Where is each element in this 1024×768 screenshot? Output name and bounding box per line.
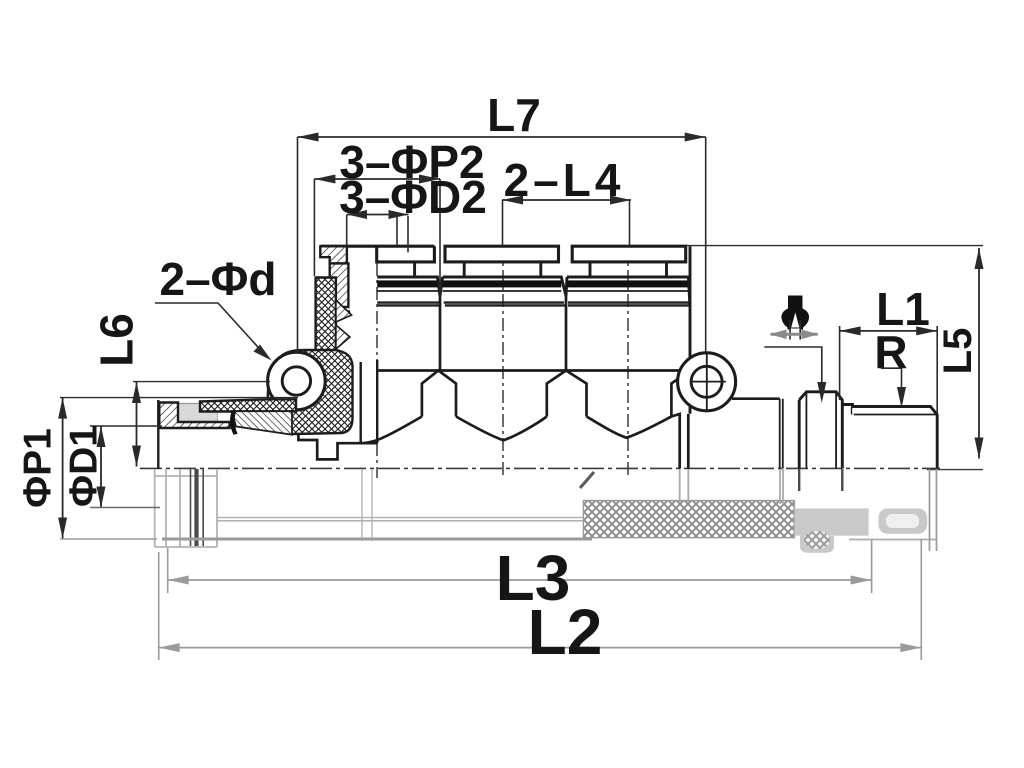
svg-text:L5: L5 bbox=[936, 328, 980, 375]
svg-text:ΦD1: ΦD1 bbox=[63, 425, 106, 507]
svg-text:L2: L2 bbox=[528, 596, 603, 668]
svg-text:ΦP1: ΦP1 bbox=[17, 428, 60, 508]
svg-text:L6: L6 bbox=[91, 313, 143, 367]
svg-text:2–Φd: 2–Φd bbox=[159, 253, 276, 305]
svg-text:3–ΦD2: 3–ΦD2 bbox=[339, 171, 487, 223]
svg-text:2–L4: 2–L4 bbox=[504, 154, 625, 206]
svg-text:R: R bbox=[874, 326, 907, 378]
svg-text:L7: L7 bbox=[487, 89, 541, 141]
